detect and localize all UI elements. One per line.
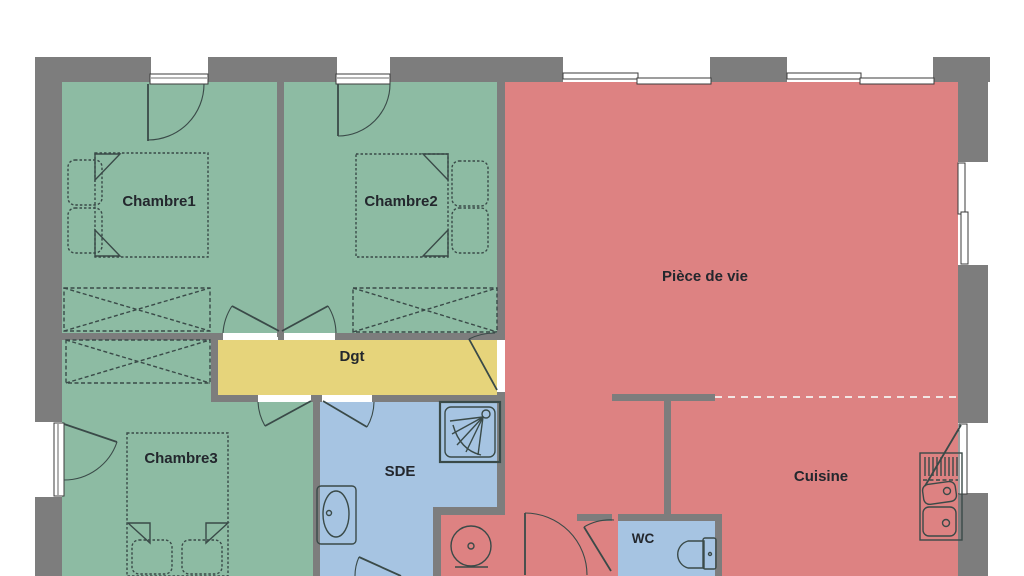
wall-segment	[218, 333, 223, 340]
wall-segment	[958, 57, 988, 162]
room-sde-floor	[320, 402, 497, 507]
wall-segment	[618, 514, 722, 521]
wall-segment	[35, 57, 62, 422]
wall-segment	[710, 57, 787, 82]
wall-segment	[958, 265, 988, 423]
room-label-chambre3: Chambre3	[144, 450, 217, 467]
wall-segment	[278, 333, 284, 340]
wall-segment	[211, 337, 218, 402]
room-label-cuisine: Cuisine	[794, 468, 848, 485]
wall-segment	[612, 394, 715, 401]
window-icon	[150, 74, 208, 84]
wall-segment	[433, 507, 441, 576]
wall-segment	[311, 395, 322, 402]
window-icon	[54, 423, 64, 496]
room-label-dgt: Dgt	[340, 348, 365, 365]
wall-segment	[664, 401, 671, 514]
room-piece-de-vie-floor	[505, 82, 958, 576]
room-label-wc: WC	[632, 531, 655, 546]
wall-segment	[497, 82, 505, 340]
room-fills	[62, 82, 958, 576]
room-label-sde: SDE	[385, 463, 416, 480]
room-chambre3-floor	[218, 402, 313, 576]
floor-plan: Chambre1 Chambre2 Chambre3 Pièce de vie …	[0, 0, 1024, 576]
window-icon	[336, 74, 390, 84]
wall-segment	[62, 333, 218, 340]
wall-segment	[218, 395, 258, 402]
wall-segment	[433, 507, 505, 515]
room-label-chambre1: Chambre1	[122, 193, 195, 210]
wall-segment	[277, 82, 284, 337]
window-icon	[959, 424, 967, 494]
room-label-piece-de-vie: Pièce de vie	[662, 268, 748, 285]
wall-segment	[35, 497, 62, 576]
wall-segment	[390, 57, 563, 82]
room-label-chambre2: Chambre2	[364, 193, 437, 210]
floor-plan-page: Chambre1 Chambre2 Chambre3 Pièce de vie …	[0, 0, 1024, 576]
wall-segment	[208, 57, 337, 82]
wall-segment	[335, 333, 497, 340]
